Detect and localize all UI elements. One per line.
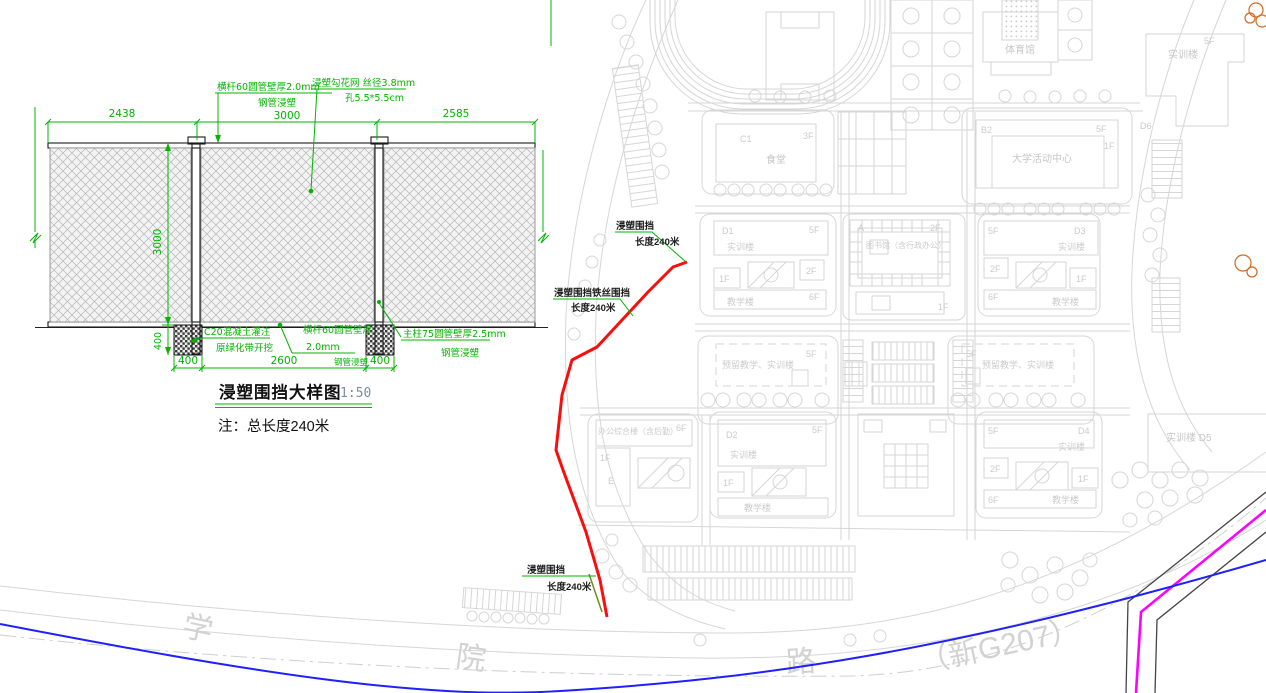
d2-name: 实训楼 xyxy=(730,449,757,460)
c1-code: C1 xyxy=(740,134,752,144)
d1-1f: 1F xyxy=(719,274,730,284)
d1-2f: 2F xyxy=(806,266,817,276)
road-name-suffix: （新G207） xyxy=(916,613,1083,679)
dim-top-left: 2438 xyxy=(109,108,136,120)
trees-orange xyxy=(1235,3,1266,277)
svg-text:主柱75圆管壁厚2.5mm: 主柱75圆管壁厚2.5mm xyxy=(403,328,506,340)
building-d1-training: D1 5F 实训楼 1F 2F 6F 教学楼 xyxy=(700,214,836,316)
detail-title: 浸塑围挡大样图 xyxy=(219,382,342,402)
gymnasium: 体育馆 xyxy=(983,0,1058,75)
reserved-left-5f: 5F xyxy=(806,349,817,359)
b2-name: 大学活动中心 xyxy=(1012,152,1072,165)
d1-floor: 5F xyxy=(809,225,820,235)
building-library: A 2F 图书馆（含行政办公） 1F xyxy=(843,214,965,320)
building-center-row4 xyxy=(858,414,954,516)
d4-5f: 5F xyxy=(988,426,999,436)
drawing-canvas: 体育馆 C1 3F 食堂 B2 5F 1F 大学活动中心 xyxy=(0,0,1266,693)
cad-sheet: 体育馆 C1 3F 食堂 B2 5F 1F 大学活动中心 xyxy=(0,0,1266,693)
d2-code: D2 xyxy=(726,430,738,440)
svg-text:钢管浸塑: 钢管浸塑 xyxy=(441,347,480,359)
library-name: 图书馆（含行政办公） xyxy=(866,240,946,250)
mesh-panel-right xyxy=(384,148,535,322)
d3-5f: 5F xyxy=(988,226,999,236)
dim-bottom-mid: 2600 xyxy=(271,355,298,367)
d4-name: 实训楼 xyxy=(1058,441,1085,452)
fence-label-1-line2: 长度240米 xyxy=(635,236,680,248)
d1-teaching: 教学楼 xyxy=(727,296,754,307)
office-6f: 6F xyxy=(676,423,687,433)
office-1f: 1F xyxy=(600,453,611,463)
main-road: 学 院 路 （新G207） xyxy=(0,452,1266,680)
d6-code: D6 xyxy=(1140,121,1152,131)
d4-1f: 1F xyxy=(1078,474,1089,484)
gym-label: 体育馆 xyxy=(1005,43,1035,56)
building-d3-training: 5F D3 实训楼 2F 1F 6F 教学楼 xyxy=(978,214,1100,316)
road-name-char2: 院 xyxy=(454,640,488,677)
dim-top-right: 2585 xyxy=(443,108,470,120)
svg-text:钢管浸塑: 钢管浸塑 xyxy=(334,357,369,368)
building-office-complex: 办公综合楼（含后勤） 6F 1F E xyxy=(588,414,698,522)
fence-label-1: 浸塑围挡 长度240米 xyxy=(615,220,686,262)
mesh-panel-middle xyxy=(201,148,374,322)
d1-6f: 6F xyxy=(809,292,820,302)
reserved-right-name: 预留教学、实训楼 xyxy=(982,359,1054,370)
svg-text:C20混凝土灌注: C20混凝土灌注 xyxy=(204,326,271,338)
library-code: A xyxy=(858,223,864,233)
detail-title-block: 浸塑围挡大样图 1:50 注：总长度240米 xyxy=(215,382,372,435)
fence-label-3-line1: 浸塑围挡 xyxy=(527,564,566,576)
d2-5f: 5F xyxy=(812,425,823,435)
road-centerline xyxy=(0,498,1266,676)
building-d2-training: D2 5F 实训楼 1F 教学楼 xyxy=(710,412,836,518)
fence-label-1-line1: 浸塑围挡 xyxy=(616,220,655,232)
detail-scale: 1:50 xyxy=(340,386,371,401)
building-grid-small xyxy=(838,112,906,194)
center-parking-row3 xyxy=(843,340,973,404)
svg-text:横杆60圆管壁厚2.0mm: 横杆60圆管壁厚2.0mm xyxy=(217,81,320,93)
d3-2f: 2F xyxy=(990,264,1001,274)
dim-height: 3000 xyxy=(152,229,164,256)
mesh-panel-left xyxy=(50,148,191,322)
d5-name: 实训楼 D5 xyxy=(1166,431,1212,444)
d3-code: D3 xyxy=(1074,226,1086,236)
reserved-left-name: 预留教学、实训楼 xyxy=(722,359,794,370)
office-name: 办公综合楼（含后勤） xyxy=(598,426,678,436)
building-c1-canteen: C1 3F 食堂 xyxy=(702,110,834,196)
d2-1f: 1F xyxy=(723,478,734,488)
b2-floor-inner: 1F xyxy=(1104,141,1115,151)
d1-name: 实训楼 xyxy=(727,241,754,252)
d3-1f: 1F xyxy=(1076,274,1087,284)
footing-left xyxy=(174,325,202,355)
bottom-rail xyxy=(48,322,535,327)
road-name-char1: 学 xyxy=(180,610,216,649)
svg-text:钢管浸塑: 钢管浸塑 xyxy=(258,97,297,109)
d3-name: 实训楼 xyxy=(1058,241,1085,252)
fence-label-2-line2: 长度240米 xyxy=(571,302,616,314)
d2-teaching: 教学楼 xyxy=(744,502,771,513)
fence-label-2-line1: 浸塑围挡铁丝围挡 xyxy=(554,287,631,299)
fence-label-3: 浸塑围挡 长度240米 xyxy=(522,564,596,593)
d6-5f: 5F xyxy=(1204,36,1215,46)
building-b2-activity-center: B2 5F 1F 大学活动中心 xyxy=(962,108,1132,215)
svg-text:原绿化带开挖: 原绿化带开挖 xyxy=(216,342,274,354)
fence-detail-drawing: 2438 3000 2585 3000 400 400 2600 400 横杆6… xyxy=(30,77,549,435)
b2-floor: 5F xyxy=(1096,124,1107,134)
svg-text:2.0mm: 2.0mm xyxy=(306,342,340,353)
detail-note: 注：总长度240米 xyxy=(218,418,330,435)
soccer-field xyxy=(766,12,834,100)
d4-6f: 6F xyxy=(988,495,999,505)
c1-name: 食堂 xyxy=(766,153,786,166)
dim-footing-depth: 400 xyxy=(153,332,164,350)
road-name-char3: 路 xyxy=(785,645,817,680)
d4-2f: 2F xyxy=(990,464,1001,474)
library-2f: 2F xyxy=(930,223,941,233)
building-reserved-left: 5F 预留教学、实训楼 xyxy=(698,336,838,424)
svg-text:横杆60圆管壁厚: 横杆60圆管壁厚 xyxy=(303,324,373,336)
b2-code: B2 xyxy=(981,125,992,135)
stadium-track xyxy=(650,0,890,114)
fence-label-2: 浸塑围挡铁丝围挡 长度240米 xyxy=(553,287,633,316)
office-code: E xyxy=(608,476,614,486)
building-d4-training: 5F D4 实训楼 2F 1F 6F 教学楼 xyxy=(976,412,1102,518)
building-d5-training: 实训楼 D5 xyxy=(1148,414,1266,472)
fence-route: 浸塑围挡 长度240米 浸塑围挡铁丝围挡 长度240米 浸塑围挡 长度240米 xyxy=(522,0,687,617)
top-rail xyxy=(48,143,535,148)
d3-teaching: 教学楼 xyxy=(1052,296,1079,307)
d1-code: D1 xyxy=(722,226,734,236)
d6-name: 实训楼 xyxy=(1168,48,1198,61)
d4-code: D4 xyxy=(1078,426,1090,436)
dim-bottom-left: 400 xyxy=(178,355,198,367)
dim-bottom-right: 400 xyxy=(370,355,390,367)
road-edge-top xyxy=(0,452,1266,633)
dim-top-mid: 3000 xyxy=(274,110,301,122)
svg-text:浸塑勾花网 丝径3.8mm: 浸塑勾花网 丝径3.8mm xyxy=(312,77,415,89)
svg-text:孔5.5*5.5cm: 孔5.5*5.5cm xyxy=(345,93,404,104)
fence-label-3-line2: 长度240米 xyxy=(547,581,592,593)
d4-teaching: 教学楼 xyxy=(1052,494,1079,505)
d3-6f: 6F xyxy=(988,292,999,302)
library-1f: 1F xyxy=(938,302,949,312)
c1-floor: 3F xyxy=(803,131,814,141)
